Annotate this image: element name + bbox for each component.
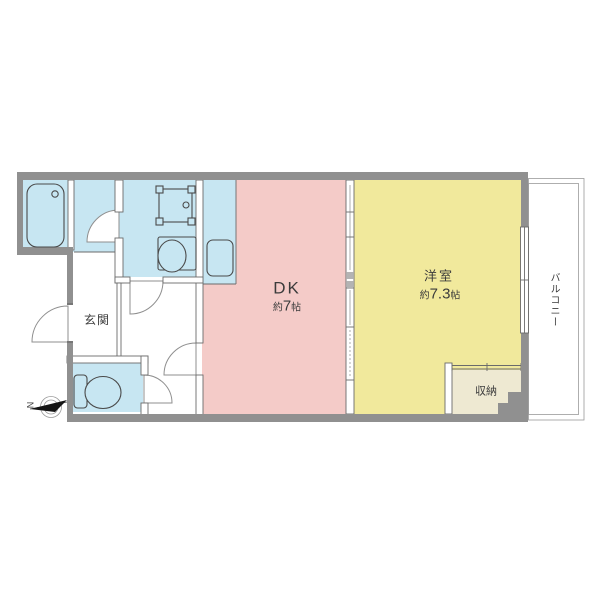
toilet-door-swing [144, 375, 172, 403]
genkan-label: 玄関 [84, 314, 110, 326]
storage-label: 収納 [475, 387, 497, 398]
dk-room-label: DK [273, 280, 301, 297]
bedroom-size-unit: 帖 [450, 291, 460, 302]
dk-size-label: 約7帖 [273, 299, 301, 314]
kitchen-sink-icon [207, 240, 233, 276]
bedroom-label: 洋室 [424, 270, 454, 283]
balcony-label: バルコニー [548, 273, 558, 328]
north-label: N [27, 402, 36, 409]
toilet-icon [74, 375, 121, 409]
washing-machine-icon [156, 186, 195, 225]
washroom-door-swing [130, 281, 163, 314]
bathtub-icon [27, 184, 64, 247]
dk-door-swing [164, 343, 196, 375]
sliding-partition [346, 180, 354, 414]
dk-size-prefix: 約 [273, 303, 283, 314]
bedroom-size-label: 約7.3帖 [420, 287, 461, 302]
floor-plan: DK 約7帖 洋室 約7.3帖 玄関 収納 バルコニー N [0, 0, 600, 600]
balcony-window [521, 227, 529, 333]
entrance-door-swing [32, 306, 68, 342]
bedroom-size-prefix: 約 [420, 291, 430, 302]
north-compass-icon [30, 397, 67, 418]
wash-basin-icon [158, 237, 196, 272]
dk-size-unit: 帖 [291, 303, 301, 314]
bedroom-size-value: 7.3 [430, 286, 451, 303]
